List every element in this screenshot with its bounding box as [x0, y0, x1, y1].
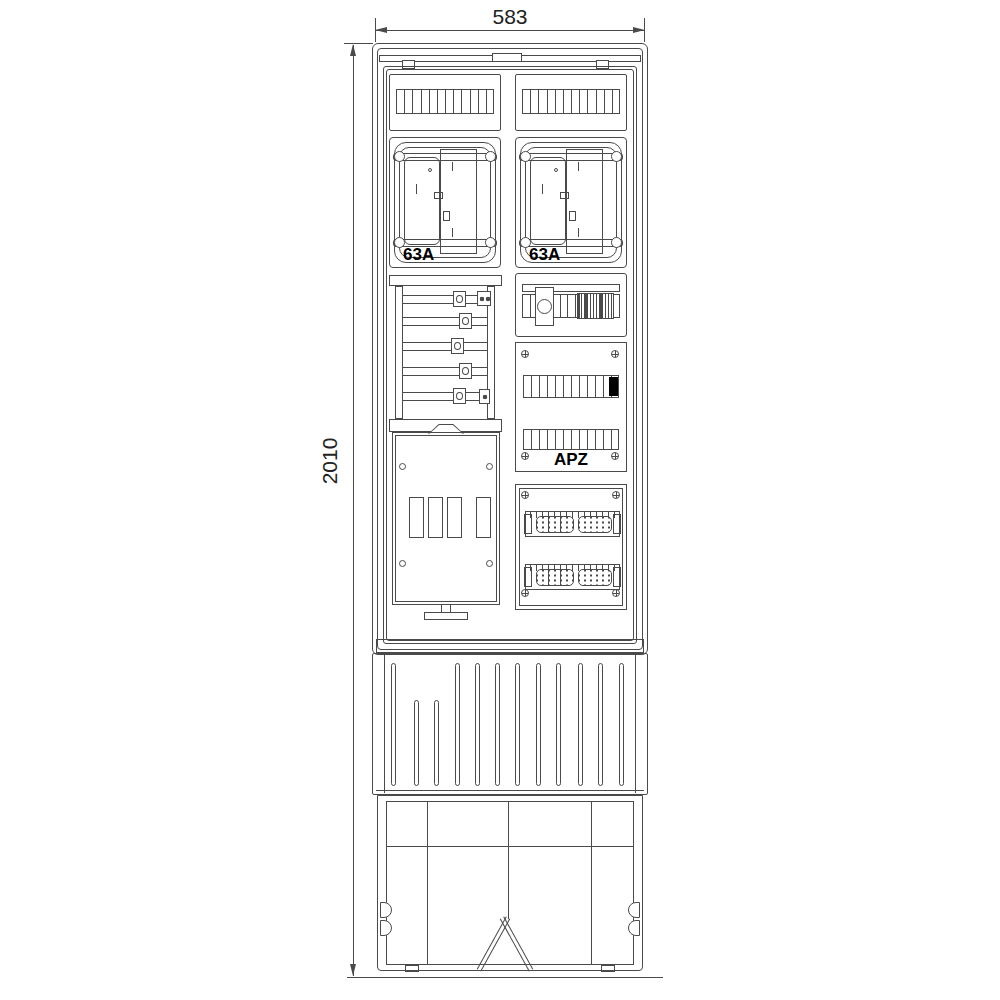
extension-line-top: [344, 43, 373, 44]
busbar: [403, 317, 487, 326]
ventilation-slot: [428, 497, 443, 538]
base-rib-short: [414, 700, 419, 786]
base-rib: [495, 663, 500, 786]
width-dimension-label: 583: [445, 5, 575, 29]
busbar-terminal-double: [477, 291, 491, 306]
busbar-clamp: [453, 291, 466, 307]
corner-screw: [612, 589, 620, 597]
base-rib-short: [434, 700, 439, 786]
busbar: [403, 367, 487, 376]
terminal-endcap: [524, 567, 532, 587]
dim-arrow-down: [350, 964, 356, 976]
corner-screw: [521, 491, 529, 499]
meter-detail-mark: [578, 162, 579, 171]
meter-mount-left: [404, 157, 440, 245]
base-rib: [515, 663, 520, 786]
meter-mount-plate: [566, 149, 603, 254]
foundation-inner: [386, 801, 634, 965]
meter-detail-mark: [554, 168, 558, 172]
din-strip-lower: [523, 429, 619, 450]
terminal-block-divider: [548, 570, 549, 585]
plinth-band: [376, 639, 644, 653]
meter-detail-mark: [560, 192, 569, 199]
busbar-clamp: [451, 338, 464, 354]
corner-screw: [612, 491, 620, 499]
din-strip: [396, 89, 494, 114]
dim-arrow-left: [375, 27, 387, 33]
base-rib: [455, 663, 460, 786]
foundation-strut: [427, 801, 428, 965]
din-strip: [522, 89, 620, 114]
ventilation-slot: [409, 497, 424, 538]
ventilation-slot: [447, 497, 462, 538]
base-rib: [619, 663, 624, 786]
busbar-clamp: [453, 388, 466, 404]
roof-center-tab: [492, 53, 522, 62]
cover-screw: [399, 560, 406, 567]
ventilation-slot: [476, 497, 491, 538]
terminal-endcap: [613, 514, 621, 534]
cover-foot-base: [424, 612, 468, 620]
rail-screw: [611, 151, 622, 162]
rail-screw: [485, 151, 496, 162]
busbar-clamp: [459, 313, 472, 329]
terminal-endcap: [524, 514, 532, 534]
meter-detail-mark: [542, 184, 543, 194]
terminal-block: [578, 569, 612, 586]
meter-rating-label: 63A: [529, 245, 573, 265]
ground-line: [347, 977, 663, 978]
anchor-hook-right: [628, 920, 640, 936]
busbar: [403, 295, 487, 304]
busbar-rail-left: [395, 286, 403, 419]
base-bottom-lip: [376, 790, 644, 791]
meter-mount-plate: [440, 149, 477, 254]
base-rib: [475, 663, 480, 786]
corner-screw: [521, 589, 529, 597]
anchor-hook-right: [628, 902, 640, 918]
base-rib: [598, 663, 603, 786]
meter-detail-mark: [416, 184, 417, 194]
base-rib: [391, 663, 396, 786]
corner-screw: [521, 350, 529, 358]
meter-detail-mark: [452, 228, 453, 237]
meter-detail-mark: [434, 192, 443, 199]
busbar: [403, 392, 487, 401]
apz-label: APZ: [515, 450, 627, 470]
busbar-terminal-single: [479, 389, 490, 404]
terminal-block-divider: [548, 517, 549, 532]
base-rib: [536, 663, 541, 786]
foundation-crossbar: [386, 846, 634, 847]
height-dimension-line: [353, 45, 354, 976]
cover-screw: [399, 463, 406, 470]
base-wall-left: [384, 655, 385, 793]
base-rib: [556, 663, 561, 786]
rail-screw: [611, 237, 622, 248]
technical-drawing-canvas: 583 2010: [0, 0, 1000, 1000]
height-dimension-label: 2010: [318, 411, 342, 511]
width-dimension-line: [375, 30, 645, 31]
terminal-block: [578, 516, 612, 533]
busbar-clamp: [459, 363, 472, 379]
corner-screw: [611, 350, 619, 358]
terminal-block-divider: [560, 517, 561, 532]
dim-arrow-right: [633, 27, 645, 33]
base-rib: [578, 663, 583, 786]
terminal-endcap: [613, 567, 621, 587]
base-wall-right: [635, 655, 636, 793]
breaker-block: [577, 293, 614, 319]
busbar-cap-top: [389, 275, 502, 286]
meter-detail-mark: [452, 162, 453, 171]
din-strip-upper: [523, 375, 619, 398]
terminal-block: [536, 569, 574, 586]
terminal-block-divider: [560, 570, 561, 585]
meter-detail-mark: [578, 228, 579, 237]
rail-screw: [485, 237, 496, 248]
foundation-strut: [591, 801, 592, 965]
meter-rating-label: 63A: [403, 245, 447, 265]
foundation-foot: [405, 965, 419, 972]
foundation-center-strut: [508, 801, 509, 919]
installed-module-black: [609, 377, 618, 396]
switch-knob: [537, 299, 552, 314]
cover-screw: [486, 463, 493, 470]
meter-detail-mark: [428, 168, 432, 172]
meter-detail-mark: [569, 211, 576, 221]
meter-mount-left: [530, 157, 566, 245]
foundation-foot: [601, 965, 615, 972]
dim-arrow-up: [350, 44, 356, 56]
cover-screw: [486, 560, 493, 567]
terminal-block: [536, 516, 574, 533]
meter-detail-mark: [443, 211, 450, 221]
busbar: [403, 342, 487, 351]
